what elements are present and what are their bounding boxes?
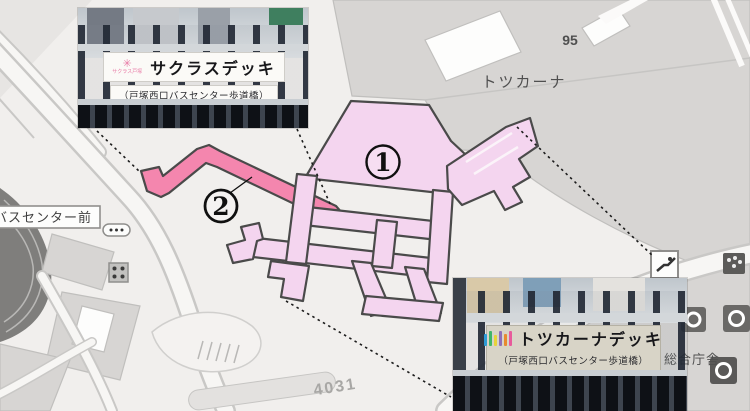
marker-1: 1 xyxy=(367,146,400,179)
deck-slats xyxy=(78,105,308,128)
sakuras-deck-photo: ✳ サクラス戸塚 サクラスデッキ （戸塚西口バスセンター歩道橋） xyxy=(78,8,308,128)
sakuras-logo: ✳ サクラス戸塚 xyxy=(112,59,142,75)
crossing-icon xyxy=(109,263,128,282)
tower-number-label: 95 xyxy=(562,32,578,48)
totsukana-sign-subtitle: （戸塚西口バスセンター歩道橋） xyxy=(498,353,648,367)
marker-1-number: 1 xyxy=(374,148,391,177)
circle-facility-icon xyxy=(723,305,750,332)
deck-slats xyxy=(453,376,687,411)
totsukana-sign-title: トツカーナデッキ xyxy=(519,326,663,350)
totsukana-logo xyxy=(484,331,512,346)
map-screenshot: 95 トツカーナ バスセンター前 4031 総合庁舎 1 2 xyxy=(0,0,750,411)
sakuras-sign-title-panel: ✳ サクラス戸塚 サクラスデッキ xyxy=(103,52,284,82)
totsukana-deck-photo: トツカーナデッキ （戸塚西口バスセンター歩道橋） totsukana xyxy=(453,278,687,411)
totsukana-sign-panel: トツカーナデッキ （戸塚西口バスセンター歩道橋） totsukana xyxy=(486,325,661,378)
handrail xyxy=(78,44,308,51)
facility-icon xyxy=(723,253,745,274)
totsukana-building-label: トツカーナ xyxy=(481,74,566,91)
marker-2-number: 2 xyxy=(212,192,229,221)
sakuras-sign-title: サクラスデッキ xyxy=(150,55,276,79)
bus-stop-label: バスセンター前 xyxy=(0,210,92,225)
handrail xyxy=(453,313,687,322)
photo-sign-green xyxy=(269,8,304,25)
